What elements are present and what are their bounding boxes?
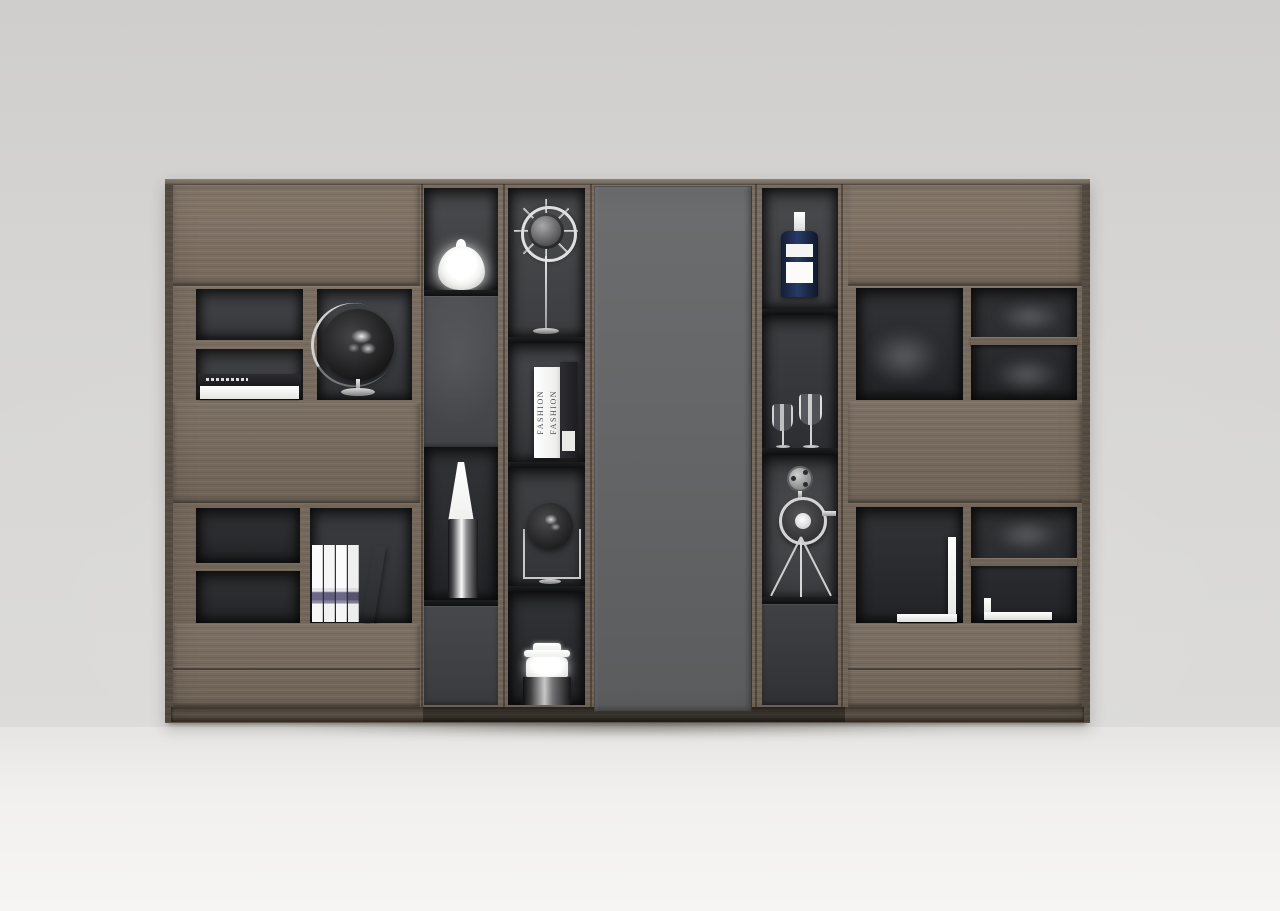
soft-light-reflection <box>996 296 1071 334</box>
camera-film-reel <box>787 466 813 492</box>
bookend-upright-blade <box>948 537 956 618</box>
film-camera-niche <box>762 455 838 600</box>
blue-bottle-label-upper <box>786 244 813 257</box>
globe-base <box>341 388 375 396</box>
flat-book-dark-spine-lettering <box>206 378 248 381</box>
tripod-center-leg <box>800 538 802 598</box>
blue-bottle-niche <box>762 188 838 309</box>
glasses-niche <box>762 315 838 461</box>
left-upper-niche-a <box>196 289 303 340</box>
tripod-right-leg <box>800 537 832 597</box>
fashion-book-pair: FASHION FASHION <box>534 367 560 458</box>
jar-shoulder <box>526 657 568 677</box>
blue-bottle-body <box>781 231 818 297</box>
right-upper-wood-shelf <box>971 337 1077 345</box>
left-bottom-drawer-seam <box>173 668 420 670</box>
wine-glass-stem <box>782 431 784 446</box>
wine-glass-bowl <box>772 404 793 431</box>
center-gray-door <box>594 186 752 712</box>
left-lower-niche-b <box>196 571 300 623</box>
jar-body <box>523 677 571 705</box>
right-bottom-drawers <box>848 624 1082 707</box>
tall-bottle-body <box>448 519 478 598</box>
divider-left-col1 <box>421 184 423 707</box>
column3-closed-panel-lower <box>762 604 838 705</box>
white-vase-niche <box>424 188 498 290</box>
globe-niche <box>317 289 412 400</box>
left-top-door-seam <box>173 284 420 286</box>
blue-bottle-cap <box>794 212 805 233</box>
flat-book-dark <box>198 374 301 386</box>
fashion-books-niche: FASHION FASHION <box>508 343 585 462</box>
column3-shelf <box>762 597 838 604</box>
mini-globe-niche <box>508 468 585 586</box>
standing-book <box>324 545 335 622</box>
bookshelf-cabinet: FASHION FASHION <box>165 179 1090 723</box>
column1-closed-panel-lower <box>424 606 498 705</box>
dark-book-label <box>562 431 575 451</box>
leaning-book <box>362 545 386 624</box>
right-upper-niche-a <box>856 288 963 400</box>
soft-light-reflection <box>991 350 1071 395</box>
reel-hole <box>803 470 808 475</box>
soft-light-reflection <box>866 318 951 388</box>
mini-globe-sphere <box>527 503 573 549</box>
standing-books-niche <box>310 508 412 623</box>
globe-sphere <box>322 309 394 381</box>
bookend-base-plate <box>897 614 957 622</box>
ship-wheel-base <box>533 328 559 334</box>
standing-book <box>312 545 323 622</box>
reel-hole <box>791 476 796 481</box>
reel-hole <box>803 482 808 487</box>
bookend-base-plate <box>984 612 1052 620</box>
divider-door-col3 <box>755 184 757 707</box>
right-lower-niche-b <box>971 507 1077 623</box>
ship-wheel-niche <box>508 188 585 337</box>
cabinet-right-side <box>1082 184 1090 722</box>
right-top-door-seam <box>848 284 1082 286</box>
right-middle-drawer <box>848 402 1082 503</box>
left-middle-drawer <box>173 403 420 503</box>
camera-lens-center <box>795 513 811 529</box>
right-bottom-drawer-seam <box>848 668 1082 670</box>
left-top-cabinet-door <box>173 185 420 284</box>
left-lower-niche-a <box>196 508 300 563</box>
flat-book-white <box>200 386 299 399</box>
jar-vase-niche <box>508 592 585 705</box>
ship-wheel-stem <box>545 256 547 330</box>
fashion-book-spine-text: FASHION <box>536 390 545 435</box>
jar-flange <box>524 650 570 657</box>
camera-side-handle <box>822 511 836 516</box>
soft-light-reflection <box>993 513 1068 553</box>
left-upper-niche-b <box>196 349 303 400</box>
right-lower-niche-a <box>856 507 963 623</box>
divider-col3-right <box>841 184 843 707</box>
ship-wheel-center-sphere <box>528 213 564 249</box>
wine-glass-bowl <box>799 394 822 425</box>
cabinet-left-side <box>165 184 173 722</box>
tripod-left-leg <box>770 537 802 597</box>
right-lower-wood-shelf <box>971 558 1077 566</box>
right-top-cabinet-door <box>848 185 1082 284</box>
column1-closed-panel-upper <box>424 296 498 447</box>
tall-bottle-neck <box>448 462 474 522</box>
divider-col2-door <box>590 184 592 707</box>
dark-book <box>560 362 577 458</box>
scene: FASHION FASHION <box>0 0 1280 911</box>
right-upper-niche-b <box>971 288 1077 400</box>
standing-book <box>336 545 347 622</box>
left-bottom-drawers <box>173 624 420 707</box>
fashion-book-spine-text: FASHION <box>549 390 558 435</box>
floor <box>0 727 1280 911</box>
wine-glass-stem <box>810 425 812 446</box>
tall-bottle-niche <box>424 447 498 600</box>
white-teardrop-vase <box>438 246 485 290</box>
blue-bottle-label-lower <box>786 262 813 283</box>
divider-col1-col2 <box>503 184 505 707</box>
standing-book <box>348 545 359 622</box>
column3-shelf <box>762 448 838 455</box>
mini-globe-base <box>539 579 561 584</box>
